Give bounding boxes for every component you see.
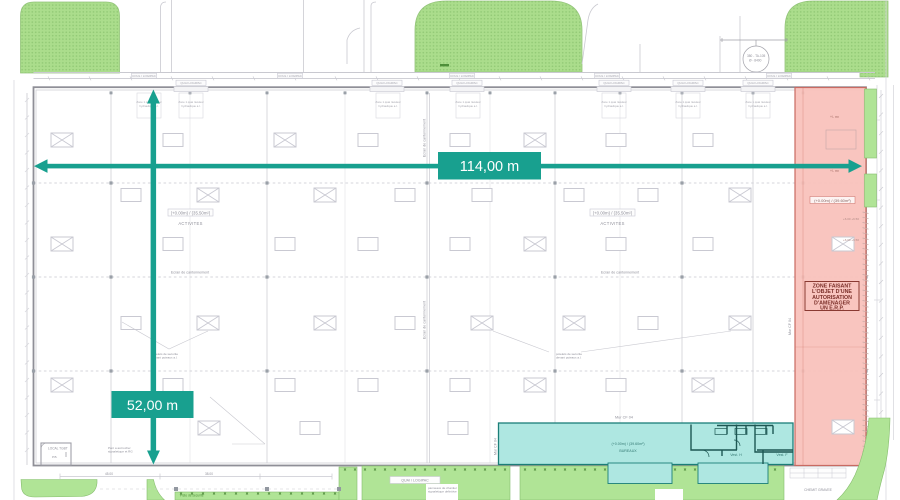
svg-text:hydraulique a.l.: hydraulique a.l. bbox=[379, 104, 398, 108]
svg-text:+6.00 +6.50: +6.00 +6.50 bbox=[843, 217, 859, 221]
svg-text:P.B.: P.B. bbox=[52, 455, 57, 459]
svg-text:QUAI LOGIPAC: QUAI LOGIPAC bbox=[677, 81, 699, 85]
svg-text:380 - TA-105: 380 - TA-105 bbox=[747, 54, 766, 58]
svg-text:+/- m²: +/- m² bbox=[830, 169, 840, 173]
svg-text:38.00: 38.00 bbox=[205, 472, 213, 476]
svg-text:Ecran de cantonnement: Ecran de cantonnement bbox=[601, 271, 639, 275]
svg-text:Vest. F: Vest. F bbox=[776, 453, 788, 457]
svg-text:ACTIVITES: ACTIVITES bbox=[178, 221, 202, 226]
svg-text:CHEMIT GRAVEE: CHEMIT GRAVEE bbox=[804, 488, 832, 492]
svg-text:Mur CF 04: Mur CF 04 bbox=[615, 416, 633, 420]
svg-text:(+0.00m) / (39.60m²): (+0.00m) / (39.60m²) bbox=[611, 442, 644, 446]
svg-text:QUAI LOGIPAC: QUAI LOGIPAC bbox=[376, 81, 398, 85]
svg-text:COUL / LOGIPAC: COUL / LOGIPAC bbox=[132, 74, 157, 78]
svg-text:COUL / LOGIPAC: COUL / LOGIPAC bbox=[767, 74, 792, 78]
svg-text:hydraulique a.l.: hydraulique a.l. bbox=[605, 104, 624, 108]
svg-text:signaletique et RG: signaletique et RG bbox=[108, 450, 133, 454]
svg-text:114,00 m: 114,00 m bbox=[460, 159, 519, 175]
svg-text:Mur CF 04: Mur CF 04 bbox=[494, 438, 498, 455]
svg-text:52,00 m: 52,00 m bbox=[127, 398, 178, 414]
svg-text:QUAI LOGIPAC: QUAI LOGIPAC bbox=[180, 81, 202, 85]
svg-text:COUL / LOGIPAC: COUL / LOGIPAC bbox=[450, 74, 475, 78]
svg-text:Mur CF 04: Mur CF 04 bbox=[788, 318, 792, 335]
svg-text:(+0.00m) / (35.50m²): (+0.00m) / (35.50m²) bbox=[171, 211, 211, 216]
svg-text:UN E.R.P.: UN E.R.P. bbox=[820, 306, 844, 312]
svg-text:(+0.00m) / (35.50m²): (+0.00m) / (35.50m²) bbox=[593, 211, 633, 216]
svg-text:ACTIVITES: ACTIVITES bbox=[600, 221, 624, 226]
svg-text:hydraulique a.l.: hydraulique a.l. bbox=[679, 104, 698, 108]
svg-text:Ø - 8400: Ø - 8400 bbox=[749, 59, 762, 63]
svg-text:hydraulique a.l.: hydraulique a.l. bbox=[459, 104, 478, 108]
svg-text:45.00: 45.00 bbox=[105, 472, 113, 476]
svg-text:Ecran de cantonnement: Ecran de cantonnement bbox=[423, 301, 427, 339]
svg-text:QUAI / LOGIPAC: QUAI / LOGIPAC bbox=[401, 479, 429, 483]
svg-text:+6.00 +6.50: +6.00 +6.50 bbox=[843, 238, 859, 242]
svg-text:hydraulique a.l.: hydraulique a.l. bbox=[749, 104, 768, 108]
svg-text:LOCAL TGBT: LOCAL TGBT bbox=[48, 447, 68, 451]
svg-text:Vest. H: Vest. H bbox=[730, 453, 742, 457]
svg-text:QUAI LOGIPAC: QUAI LOGIPAC bbox=[456, 81, 478, 85]
svg-text:QUAI LOGIPAC: QUAI LOGIPAC bbox=[747, 81, 769, 85]
svg-text:Ecran de cantonnement: Ecran de cantonnement bbox=[171, 271, 209, 275]
svg-text:devant poteaux a.l.: devant poteaux a.l. bbox=[556, 356, 582, 360]
svg-text:BUREAUX: BUREAUX bbox=[619, 449, 637, 453]
svg-text:(+0.00m) / (39.60m²): (+0.00m) / (39.60m²) bbox=[814, 198, 851, 203]
svg-text:hydraulique a.l.: hydraulique a.l. bbox=[182, 104, 201, 108]
svg-text:QUAI LOGIPAC: QUAI LOGIPAC bbox=[603, 81, 625, 85]
svg-text:signaletique definitive: signaletique definitive bbox=[428, 490, 457, 494]
svg-text:COUL / LOGIPAC: COUL / LOGIPAC bbox=[278, 74, 303, 78]
svg-text:COUL / LOGIPAC: COUL / LOGIPAC bbox=[595, 74, 620, 78]
svg-text:Ecran de cantonnement: Ecran de cantonnement bbox=[423, 119, 427, 157]
svg-text:+/- m²: +/- m² bbox=[830, 115, 840, 119]
